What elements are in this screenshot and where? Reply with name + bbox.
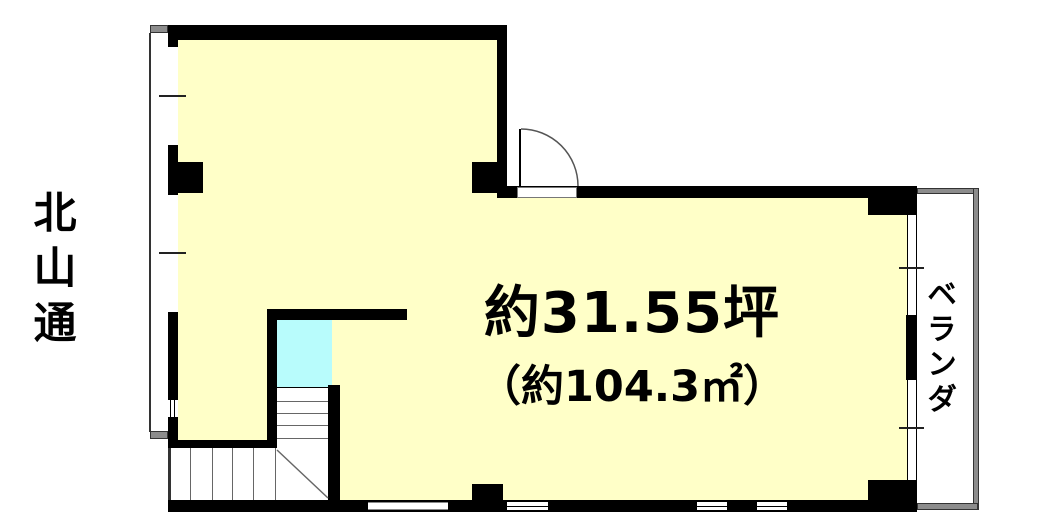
veranda-label: ベランダ (922, 270, 960, 426)
stair-right-wall (328, 385, 340, 512)
area-tsubo-label: 約31.55坪 (432, 268, 832, 349)
left-wall-small-window (168, 400, 178, 417)
left-window-cap-bottom (150, 431, 168, 439)
left-wall-segment (168, 417, 178, 440)
veranda-edge-top (917, 188, 978, 194)
area-sqm-label: （約104.3㎡） (432, 352, 832, 414)
left-wall-pillar (178, 162, 203, 193)
left-wall-segment (168, 145, 178, 195)
bottom-wall-window (368, 502, 448, 510)
entrance-door-opening (517, 187, 577, 198)
window-mullion-tick (899, 427, 924, 429)
bottom-wall-window (507, 502, 548, 510)
right-wall-pillar (472, 162, 497, 193)
veranda-edge-bottom (917, 503, 978, 510)
door-leaf (519, 129, 521, 187)
top-right-corner-block (868, 198, 917, 215)
stair-mid-wall (168, 440, 277, 448)
bottom-wall-window (757, 502, 787, 510)
stairwell-void (277, 320, 332, 387)
stair-top-wall (267, 309, 407, 320)
veranda-edge-right (973, 188, 979, 510)
bottom-wall-pillar (472, 484, 503, 500)
stair-upper-flight (277, 387, 328, 450)
left-window-cap-top (150, 25, 168, 33)
left-window-outer-frame (149, 33, 151, 432)
window-mullion-tick (159, 95, 186, 97)
street-label: 北山通 (30, 182, 82, 362)
upper-room-right-wall (497, 25, 507, 197)
room-area-main (507, 198, 907, 500)
window-mullion-tick (159, 252, 186, 254)
stair-left-wall (267, 309, 277, 448)
door-swing-arc (521, 129, 578, 186)
floor-plan: 北山通 ベランダ 約31.55坪 （約104.3㎡） (0, 0, 1044, 532)
stair-lower-flight (171, 448, 328, 500)
top-wall-upper-room (168, 25, 507, 40)
left-wall-segment (168, 312, 178, 400)
bottom-wall-window (697, 502, 727, 510)
window-mullion-tick (899, 267, 924, 269)
